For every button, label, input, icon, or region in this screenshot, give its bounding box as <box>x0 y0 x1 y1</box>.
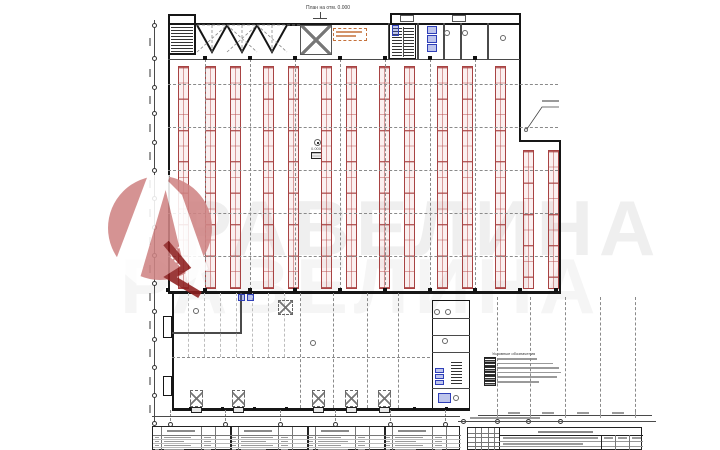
titleblock-main-div <box>499 428 500 450</box>
stadia-col-line <box>601 435 602 450</box>
column-annex <box>445 407 448 410</box>
wall-hall-bottom <box>168 291 561 294</box>
table-row-line <box>384 447 461 448</box>
wall-left <box>168 23 170 293</box>
column-bottom <box>473 288 477 292</box>
grid-bubble-left <box>152 309 157 314</box>
column-bottom <box>293 288 297 292</box>
stadia-text <box>604 437 613 439</box>
toilet-stall <box>427 26 437 34</box>
grid-axis-horizontal <box>168 256 558 257</box>
yard-dim-tick <box>635 412 636 418</box>
grid-bubble-left <box>152 168 157 173</box>
floorplan-screenshot: РАВЕЛИНА РАВЕЛИНА План на отм. 0.000 <box>0 0 720 450</box>
grid-axis-horizontal <box>168 170 558 171</box>
plan-layer: План на отм. 0.000 <box>0 0 720 450</box>
annex-joist-line <box>268 293 269 357</box>
legend-item-text <box>497 358 537 360</box>
table-cell-text <box>358 445 365 447</box>
table-row-line <box>153 447 230 448</box>
stair-hatch-topleft <box>171 24 193 52</box>
yard-axis-vertical <box>635 297 636 412</box>
grid-bubble-left <box>152 421 157 426</box>
table-cell-text <box>358 437 365 439</box>
table-cell-text <box>395 445 423 447</box>
wall-notch <box>519 140 561 142</box>
table-cell-text <box>281 441 288 443</box>
column-annex <box>413 407 416 410</box>
table-cell-text <box>318 445 341 447</box>
column-bottom <box>518 288 522 292</box>
column-bottom <box>383 288 387 292</box>
table-cell-text <box>309 441 313 443</box>
hall-amenity-floorline <box>168 59 520 60</box>
fixture-circle <box>445 309 451 315</box>
revision-col-line <box>488 428 489 450</box>
table-cell-text <box>232 437 236 439</box>
grid-bubble-left <box>152 85 157 90</box>
dock-zone <box>345 390 358 407</box>
table-cell-text <box>241 441 266 443</box>
table-cell-text <box>395 441 416 443</box>
legend-item-text <box>497 376 557 378</box>
table-row-line <box>230 447 307 448</box>
partition-2 <box>417 23 419 59</box>
table-row-line <box>230 439 307 440</box>
yard-axis-vertical <box>497 297 498 412</box>
sawtooth-bracing <box>197 25 300 52</box>
left-dim-text <box>149 38 151 46</box>
grid-bubble-left <box>152 281 157 286</box>
left-dim-text <box>149 124 151 132</box>
annex-axis-vertical <box>333 293 334 408</box>
table-cell-text <box>204 441 211 443</box>
grid-bubble-left <box>152 393 157 398</box>
revision-row-line <box>468 437 499 438</box>
left-dim-text <box>149 69 151 77</box>
yard-dim-tick <box>600 412 601 418</box>
left-dim-text <box>149 237 151 245</box>
grid-bubble-left <box>152 111 157 116</box>
column-top <box>473 56 477 60</box>
annex-axis-vertical <box>300 293 301 408</box>
dock-zone <box>312 390 325 407</box>
column-annex <box>285 407 288 410</box>
left-dim-text <box>149 377 151 385</box>
legend-item-text <box>497 367 559 369</box>
orange-note-text-1 <box>336 31 362 33</box>
stadia-text <box>632 437 641 439</box>
revision-col-line <box>475 428 476 450</box>
stair-divider <box>403 27 404 57</box>
column-bottom <box>554 288 558 292</box>
legend-item-text <box>497 372 561 374</box>
column-top <box>428 56 432 60</box>
annex-joist-line <box>252 293 253 357</box>
pilaster-2 <box>163 376 172 396</box>
fixture-circle <box>500 35 506 41</box>
yard-dim-text <box>612 412 624 414</box>
rooms-div-1 <box>432 318 470 319</box>
revision-row-line <box>468 433 499 434</box>
wall-right-lower <box>559 140 561 293</box>
table-cell-text <box>164 441 184 443</box>
fixture-circle <box>434 309 440 315</box>
revision-row-line <box>468 442 499 443</box>
dock-door <box>233 407 244 413</box>
annex-joist-line <box>220 293 221 357</box>
table-cell-text <box>155 441 159 443</box>
wall-top <box>168 23 520 25</box>
yard-dim-text <box>577 412 589 414</box>
fixture-circle <box>310 340 316 346</box>
annex-axis-vertical <box>398 293 399 408</box>
table-row-line <box>153 439 230 440</box>
table-cell-text <box>395 437 423 439</box>
annex-joist-line <box>188 293 189 357</box>
table-cell-text <box>386 441 390 443</box>
table-cell-text <box>241 437 273 439</box>
strip-toilet-box <box>438 393 451 403</box>
table-header-text <box>321 430 349 432</box>
table-cell-text <box>164 437 191 439</box>
leader-text <box>542 100 559 102</box>
table-cell-text <box>358 441 365 443</box>
left-dim-text <box>149 96 151 104</box>
elevation-marker-value: 0.000 <box>311 146 321 151</box>
left-dim-text <box>149 405 151 413</box>
annex-joist-line <box>236 293 237 357</box>
left-dim-text <box>149 265 151 273</box>
column-annex <box>253 407 256 410</box>
linework-svg <box>0 0 720 450</box>
fixture-circle <box>193 308 199 314</box>
wall-parapet-left <box>390 13 392 23</box>
strip-toilet-cell <box>435 380 444 385</box>
toilet-box <box>392 25 399 36</box>
grid-axis-horizontal <box>168 213 558 214</box>
dock-zone <box>232 390 245 407</box>
pilaster-1 <box>163 316 172 338</box>
column-bottom <box>203 288 207 292</box>
table-row-line <box>230 443 307 444</box>
column-annex <box>221 407 224 410</box>
table-header-text <box>398 430 426 432</box>
table-cell-text <box>435 437 442 439</box>
grid-bubble-left <box>152 225 157 230</box>
column-bottom <box>428 288 432 292</box>
table-cell-text <box>318 441 348 443</box>
left-dim-text <box>149 209 151 217</box>
yard-dim-text <box>508 412 520 414</box>
yard-dim-tick <box>565 412 566 418</box>
grid-bubble-left <box>152 337 157 342</box>
table-cell-text <box>309 445 313 447</box>
dock-door <box>313 407 324 413</box>
left-dim-text <box>149 321 151 329</box>
rooms-div-2 <box>432 335 470 336</box>
wall-right-upper <box>519 23 521 141</box>
partition-3 <box>443 23 445 59</box>
titleblock-dim-text <box>470 417 540 419</box>
fixture-circle <box>462 30 468 36</box>
stadia-col-line <box>615 435 616 450</box>
titleblock-row-line <box>499 441 643 442</box>
leader-line <box>527 107 559 129</box>
annex-room-wall-h <box>172 332 242 334</box>
table-cell-text <box>386 445 390 447</box>
titleblock <box>467 427 642 450</box>
table-cell-text <box>232 445 236 447</box>
annex-gate <box>247 294 254 301</box>
annex-axis-vertical <box>367 293 368 408</box>
dock-door <box>191 407 202 413</box>
table-cell-text <box>204 437 211 439</box>
table-row-line <box>384 439 461 440</box>
yard-axis-vertical <box>530 297 531 412</box>
sawtooth-roof <box>197 25 300 52</box>
partition-4 <box>460 23 462 59</box>
fixture-circle <box>453 395 459 401</box>
revision-col-line <box>481 428 482 450</box>
partition-5 <box>487 23 489 59</box>
revision-col-line <box>494 428 495 450</box>
grid-axis-horizontal <box>168 127 558 128</box>
titleblock-doc-line <box>499 435 643 436</box>
left-dim-text <box>149 180 151 188</box>
annex-wall-left <box>172 293 174 410</box>
roof-vent-2 <box>452 15 466 22</box>
column-bottom <box>248 288 252 292</box>
table-cell-text <box>309 437 313 439</box>
orange-note-text-2 <box>336 35 356 37</box>
table-cell-text <box>204 445 211 447</box>
plan-title: План на отм. 0.000 <box>306 5 350 11</box>
table-cell-text <box>232 441 236 443</box>
table-cell-text <box>435 445 442 447</box>
left-dim-text <box>149 349 151 357</box>
table-cell-text <box>241 445 273 447</box>
fixture-circle <box>442 338 448 344</box>
column-top <box>203 56 207 60</box>
titleblock-desc-text <box>503 437 598 439</box>
column-bottom <box>338 288 342 292</box>
dock-door <box>346 407 357 413</box>
strip-toilet-cell <box>435 374 444 379</box>
grid-bubble-left <box>152 23 157 28</box>
dock-door <box>379 407 390 413</box>
schedule-table <box>152 426 460 450</box>
rooms-stair-hatch <box>451 362 462 385</box>
toilet-stall <box>427 44 437 52</box>
annex-axis-h <box>172 357 430 358</box>
column-top <box>383 56 387 60</box>
table-row-line <box>307 447 384 448</box>
grid-bubble-left <box>152 196 157 201</box>
dock-zone <box>190 390 203 407</box>
leader-target-circle <box>524 128 528 132</box>
table-row-line <box>307 443 384 444</box>
plan-title-flag-bar <box>313 18 327 19</box>
equipment-zone-top <box>278 300 293 315</box>
toilet-stall <box>427 35 437 43</box>
table-cell-text <box>155 445 159 447</box>
legend-block: Условные обозначения <box>484 351 554 385</box>
column-top <box>248 56 252 60</box>
titleblock-row-line <box>499 446 643 447</box>
roof-brace-bay <box>300 25 332 55</box>
table-cell-text <box>281 437 288 439</box>
yard-dim-text <box>542 412 554 414</box>
legend-item-text <box>497 363 553 365</box>
table-header-text <box>167 430 195 432</box>
column-top <box>293 56 297 60</box>
legend-title: Условные обозначения <box>492 351 535 356</box>
table-row-line <box>384 443 461 444</box>
wall-parapet-right <box>519 13 521 23</box>
elevation-marker-dot <box>317 142 319 144</box>
fixture-circle <box>444 30 450 36</box>
grid-bubble-left <box>152 253 157 258</box>
annex-joist-line <box>204 293 205 357</box>
rooms-div-4 <box>432 388 470 389</box>
grid-bubble-left <box>152 365 157 370</box>
table-row-line <box>307 439 384 440</box>
stair-hatch-right-flight <box>404 28 414 56</box>
table-cell-text <box>164 445 191 447</box>
dock-zone <box>378 390 391 407</box>
roof-vent-1 <box>400 15 414 22</box>
annex-dim-line <box>152 416 460 417</box>
grid-axis-horizontal <box>168 84 558 85</box>
grid-bubble-left <box>152 56 157 61</box>
yard-axis-vertical <box>600 297 601 412</box>
titleblock-desc-text <box>503 443 583 445</box>
titleblock-doc-number <box>538 431 593 433</box>
stadia-col-line <box>629 435 630 450</box>
legend-item-text <box>497 381 539 383</box>
legend-swatch <box>484 380 496 386</box>
yard-axis-vertical <box>565 297 566 412</box>
table-row-line <box>153 443 230 444</box>
table-cell-text <box>318 437 341 439</box>
rooms-div-3 <box>432 352 470 353</box>
table-cell-text <box>435 441 442 443</box>
titleblock-gridline <box>458 421 656 422</box>
revision-row-line <box>468 446 499 447</box>
column-bottom <box>166 288 170 292</box>
strip-toilet-cell <box>435 368 444 373</box>
left-dim-text <box>149 293 151 301</box>
grid-bubble-left <box>152 140 157 145</box>
stadia-text <box>618 437 627 439</box>
table-cell-text <box>281 445 288 447</box>
table-header-text <box>244 430 272 432</box>
table-cell-text <box>386 437 390 439</box>
column-top <box>338 56 342 60</box>
table-cell-text <box>155 437 159 439</box>
left-dim-text <box>149 152 151 160</box>
annex-gate <box>238 294 245 301</box>
